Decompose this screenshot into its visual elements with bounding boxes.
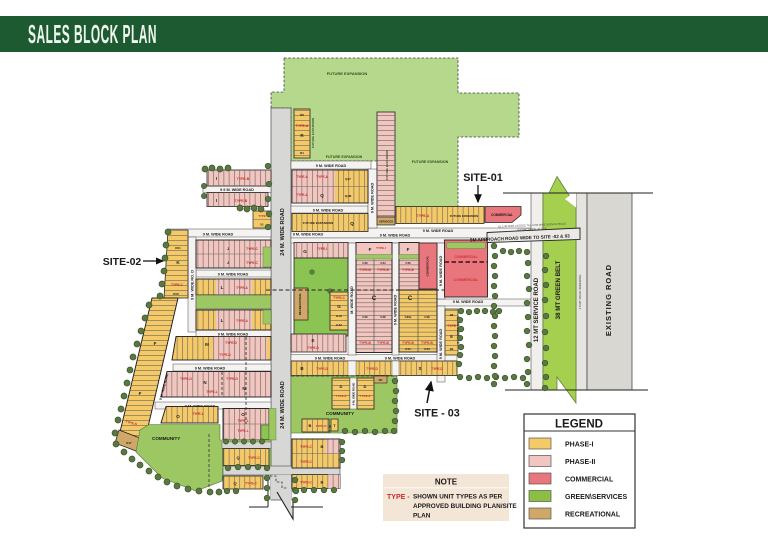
svg-text:G: G (337, 304, 341, 309)
svg-text:TYPE-C: TYPE-C (300, 481, 312, 485)
svg-text:TYPE-D: TYPE-D (219, 353, 231, 357)
svg-text:PLAN: PLAN (413, 513, 431, 520)
svg-text:TYPE-2: TYPE-2 (360, 394, 371, 398)
svg-text:FUTURE EXPANSION: FUTURE EXPANSION (311, 118, 315, 148)
svg-text:TYPE-B: TYPE-B (237, 177, 250, 181)
svg-text:TYPE-A: TYPE-A (236, 319, 248, 323)
svg-text:TYPE-D: TYPE-D (431, 367, 443, 371)
svg-text:TYPE-A: TYPE-A (296, 124, 309, 128)
svg-text:C38: C38 (424, 315, 430, 319)
svg-text:9 M. WIDE ROAD: 9 M. WIDE ROAD (195, 367, 226, 371)
svg-text:TYPE-D: TYPE-D (225, 341, 237, 345)
svg-text:Q: Q (320, 193, 324, 198)
svg-text:Q: Q (236, 455, 239, 460)
svg-text:TYPE-D: TYPE-D (366, 367, 378, 371)
svg-text:O: O (241, 412, 245, 417)
svg-text:COMMUNITY: COMMUNITY (326, 411, 354, 416)
svg-text:9 M. WIDE ROAD: 9 M. WIDE ROAD (203, 233, 234, 237)
svg-text:C34: C34 (380, 261, 386, 265)
svg-text:SITE - 03: SITE - 03 (414, 408, 460, 420)
svg-text:R1: R1 (300, 151, 304, 155)
svg-text:N: N (242, 386, 245, 391)
svg-text:SHOWN UNIT TYPES AS PER: SHOWN UNIT TYPES AS PER (413, 494, 503, 501)
svg-text:9 M. WIDE ROAD: 9 M. WIDE ROAD (316, 164, 347, 168)
svg-text:9 M. WIDE ROAD: 9 M. WIDE ROAD (380, 234, 411, 238)
svg-text:TYPE-C: TYPE-C (245, 482, 257, 486)
svg-text:TYPE-L: TYPE-L (192, 412, 203, 416)
svg-text:C: C (408, 296, 413, 302)
svg-text:COMMERCIAL: COMMERCIAL (454, 255, 477, 259)
svg-text:24 M. WIDE ROAD: 24 M. WIDE ROAD (280, 208, 286, 255)
svg-text:TYPE: TYPE (258, 214, 265, 218)
svg-text:TYPE-B: TYPE-B (377, 268, 389, 272)
svg-text:9 M. WIDE ROAD: 9 M. WIDE ROAD (371, 182, 375, 213)
svg-text:FUTURE EXPANSION: FUTURE EXPANSION (327, 71, 368, 76)
svg-text:G: G (303, 249, 307, 254)
svg-text:C41: C41 (405, 347, 411, 351)
svg-text:O: O (176, 414, 180, 419)
svg-text:TYPE-I: TYPE-I (317, 247, 327, 251)
svg-text:TYPE-D: TYPE-D (315, 424, 327, 428)
svg-text:EXISTING ROAD: EXISTING ROAD (604, 264, 613, 336)
svg-text:9 M. WIDE ROAD: 9 M. WIDE ROAD (394, 294, 398, 325)
svg-text:COMMERCIAL: COMMERCIAL (491, 213, 513, 217)
svg-text:I: I (216, 198, 217, 203)
svg-text:PHASE-I: PHASE-I (565, 442, 593, 449)
svg-text:S: S (418, 366, 421, 371)
svg-text:APPROVED BUILDING PLAN/SITE: APPROVED BUILDING PLAN/SITE (413, 503, 517, 510)
svg-text:TYPE-C: TYPE-C (246, 247, 258, 251)
svg-text:C36: C36 (405, 261, 411, 265)
svg-text:D: D (340, 384, 343, 389)
svg-text:TYPE-A: TYPE-A (296, 193, 308, 197)
svg-text:F: F (369, 247, 372, 252)
svg-text:24 M. WIDE ROAD: 24 M. WIDE ROAD (280, 381, 286, 428)
svg-text:R6: R6 (300, 113, 304, 117)
svg-text:F: F (407, 247, 410, 252)
svg-text:TYPE-B: TYPE-B (359, 341, 371, 345)
svg-text:TYPE-B: TYPE-B (377, 341, 389, 345)
svg-text:9 M. WIDE ROAD: 9 M. WIDE ROAD (385, 357, 416, 361)
svg-text:TYPE-A: TYPE-A (316, 175, 328, 179)
svg-text:TYPE-D: TYPE-D (226, 377, 238, 381)
svg-text:B6: B6 (450, 313, 454, 317)
svg-text:M: M (205, 342, 209, 347)
svg-text:9 M. WIDE ROAD: 9 M. WIDE ROAD (439, 328, 443, 359)
svg-text:K61: K61 (175, 246, 181, 250)
svg-text:L: L (221, 318, 224, 323)
svg-text:NOTE: NOTE (435, 478, 458, 487)
svg-text:GREEN\SERVICES: GREEN\SERVICES (565, 494, 627, 501)
svg-text:LEGEND: LEGEND (555, 419, 603, 431)
svg-text:TYPE-C: TYPE-C (300, 445, 312, 449)
svg-text:TYPE-B: TYPE-B (421, 341, 433, 345)
svg-text:TYPE-B: TYPE-B (359, 268, 371, 272)
svg-text:COMMERCIAL: COMMERCIAL (454, 278, 480, 282)
svg-text:B: B (321, 480, 324, 485)
svg-text:38 MT GREEN BELT: 38 MT GREEN BELT (555, 260, 562, 319)
svg-text:TYPE -: TYPE - (387, 494, 410, 501)
svg-text:E: E (311, 338, 314, 343)
svg-text:TYPE-C: TYPE-C (333, 296, 345, 300)
svg-text:C38: C38 (380, 315, 386, 319)
svg-text:TYPE-C: TYPE-C (246, 261, 258, 265)
svg-text:F: F (154, 341, 157, 346)
svg-text:9 M. WIDE ROAD: 9 M. WIDE ROAD (453, 300, 484, 304)
svg-text:FUTURE EXPANSION: FUTURE EXPANSION (412, 160, 449, 164)
svg-text:C36: C36 (362, 315, 368, 319)
svg-text:TYPE-B: TYPE-B (402, 341, 414, 345)
svg-text:B9: B9 (450, 347, 454, 351)
svg-text:RECREATIONAL: RECREATIONAL (298, 293, 302, 315)
svg-text:TYPE-2: TYPE-2 (336, 394, 347, 398)
svg-text:TYPE-D: TYPE-D (307, 346, 319, 350)
svg-text:X1: X1 (260, 223, 264, 227)
svg-text:B: B (309, 423, 312, 428)
svg-text:FUTURE EXPANSION: FUTURE EXPANSION (326, 155, 363, 159)
svg-text:B: B (321, 444, 324, 449)
svg-text:TYPE-B: TYPE-B (235, 199, 248, 203)
svg-text:COMMUNITY: COMMUNITY (152, 436, 180, 441)
svg-text:COMMERCIAL: COMMERCIAL (565, 477, 614, 484)
svg-text:TYPE-L: TYPE-L (237, 419, 248, 423)
svg-text:SITE-02: SITE-02 (103, 256, 142, 268)
svg-text:RECREATIONAL: RECREATIONAL (565, 512, 621, 519)
svg-text:TYPE-B: TYPE-B (402, 268, 414, 272)
svg-text:9 9 M. WIDE ROAD: 9 9 M. WIDE ROAD (220, 188, 254, 192)
svg-text:TYPE-A: TYPE-A (236, 286, 248, 290)
svg-text:J: J (227, 246, 229, 251)
svg-text:TYPE-C: TYPE-C (300, 460, 312, 464)
svg-text:TYPE-C: TYPE-C (171, 283, 183, 287)
svg-text:K56: K56 (173, 292, 179, 296)
svg-text:FUTURE EXPANSION: FUTURE EXPANSION (385, 150, 389, 180)
svg-text:TYPE-C: TYPE-C (248, 456, 260, 460)
svg-text:FUTURE EXPANSION: FUTURE EXPANSION (450, 214, 478, 218)
svg-text:R17: R17 (126, 441, 132, 445)
svg-text:J: J (227, 260, 229, 265)
svg-text:F: F (139, 391, 142, 396)
svg-text:12 MT SERVICE ROAD: 12 MT SERVICE ROAD (534, 277, 540, 342)
svg-text:FUTURE EXPANSION: FUTURE EXPANSION (303, 221, 333, 225)
svg-text:COMMERCIAL: COMMERCIAL (426, 256, 430, 277)
svg-text:C36a: C36a (405, 315, 412, 319)
svg-text:C: C (372, 296, 377, 302)
svg-text:SITE-01: SITE-01 (463, 172, 503, 184)
svg-text:9 M. WIDE RO. D: 9 M. WIDE RO. D (191, 270, 195, 300)
svg-text:SALES BLOCK PLAN: SALES BLOCK PLAN (28, 21, 157, 49)
svg-text:L: L (221, 285, 224, 290)
svg-text:TYPE-L: TYPE-L (206, 390, 217, 394)
svg-text:1.5 MT ROAD WIDENING: 1.5 MT ROAD WIDENING (578, 274, 582, 310)
svg-text:9 M. WIDE ROAD: 9 M. WIDE ROAD (218, 333, 249, 337)
svg-text:9 M. WIDE ROAD: 9 M. WIDE ROAD (439, 255, 443, 286)
svg-text:Q1M: Q1M (345, 194, 352, 198)
svg-text:PHASE-II: PHASE-II (565, 459, 595, 466)
svg-text:Q17: Q17 (345, 177, 351, 181)
svg-text:G1A: G1A (336, 314, 343, 318)
svg-text:G42: G42 (336, 323, 342, 327)
svg-text:N: N (203, 380, 206, 385)
svg-text:9 M. WIDE ROAD: 9 M. WIDE ROAD (293, 233, 324, 237)
svg-text:SP: SP (378, 378, 382, 382)
svg-text:Q: Q (233, 481, 236, 486)
svg-text:9 M. WIDE ROAD: 9 M. WIDE ROAD (423, 229, 454, 233)
svg-text:I: I (216, 176, 217, 181)
svg-text:Q: Q (350, 221, 354, 226)
svg-text:9 M. WIDE ROAD: 9 M. WIDE ROAD (218, 273, 249, 277)
svg-text:9 M. WIDE ROAD: 9 M. WIDE ROAD (315, 357, 346, 361)
svg-text:TYPE-L: TYPE-L (237, 429, 248, 433)
svg-text:C40: C40 (424, 347, 430, 351)
svg-text:TYPE: TYPE (447, 324, 457, 328)
svg-text:TYPE-I: TYPE-I (376, 246, 386, 250)
svg-text:TYPE-D: TYPE-D (316, 367, 328, 371)
svg-text:9 M. WIDE ROAD: 9 M. WIDE ROAD (352, 383, 356, 406)
svg-text:TYPE-A: TYPE-A (417, 214, 430, 218)
svg-text:TYPE-A: TYPE-A (296, 175, 308, 179)
svg-text:SERVICES: SERVICES (379, 220, 393, 224)
svg-text:D: D (364, 384, 367, 389)
svg-text:C36: C36 (362, 261, 368, 265)
svg-text:TYPE-D: TYPE-D (180, 377, 192, 381)
svg-text:9 M. WIDE ROAD: 9 M. WIDE ROAD (313, 209, 344, 213)
